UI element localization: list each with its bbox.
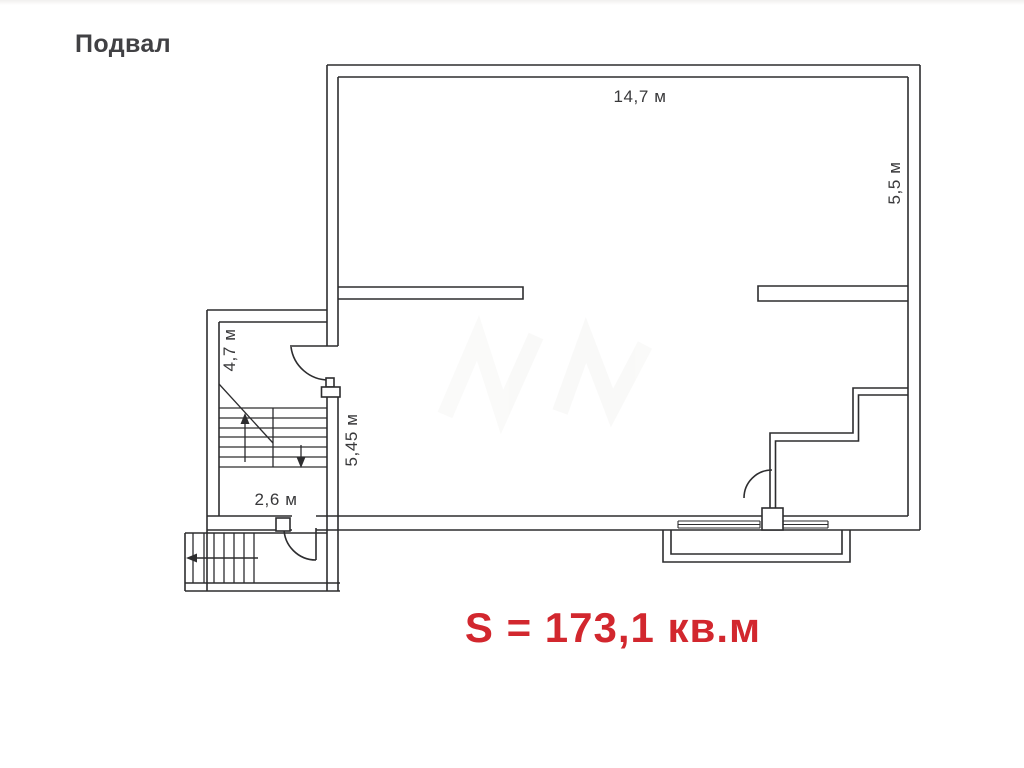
dim-left-inner-height-label: 5,45 м: [342, 413, 362, 466]
annex-staircase: [219, 384, 327, 467]
floorplan-drawing: [0, 0, 1024, 768]
partition-right: [758, 286, 908, 301]
entrance-door: [744, 470, 772, 498]
upper-door: [290, 346, 338, 380]
entrance-pillar: [762, 508, 783, 530]
exit-arrowhead: [186, 554, 197, 563]
outer-walls: [327, 65, 920, 591]
area-label: S = 173,1 кв.м: [465, 604, 761, 652]
stepped-wall: [770, 388, 908, 508]
porch: [663, 521, 850, 562]
floorplan-page: Подвал 14,7 м 5,5 м 4,7 м 5,45 м 2,6 м S…: [0, 0, 1024, 768]
stair-break-line: [219, 384, 273, 443]
threshold-left: [678, 521, 760, 528]
threshold-right: [783, 521, 828, 528]
dim-main-height-label: 5,5 м: [885, 161, 905, 204]
dim-annex-width-label: 2,6 м: [254, 490, 297, 510]
dim-annex-height-label: 4,7 м: [220, 328, 240, 371]
upper-door-jamb: [322, 378, 341, 397]
partition-left: [338, 287, 523, 299]
inner-walls: [338, 77, 908, 591]
lower-door-jamb: [276, 518, 290, 531]
page-title: Подвал: [75, 30, 171, 59]
watermark: [445, 336, 645, 415]
dim-main-width-label: 14,7 м: [613, 87, 666, 107]
